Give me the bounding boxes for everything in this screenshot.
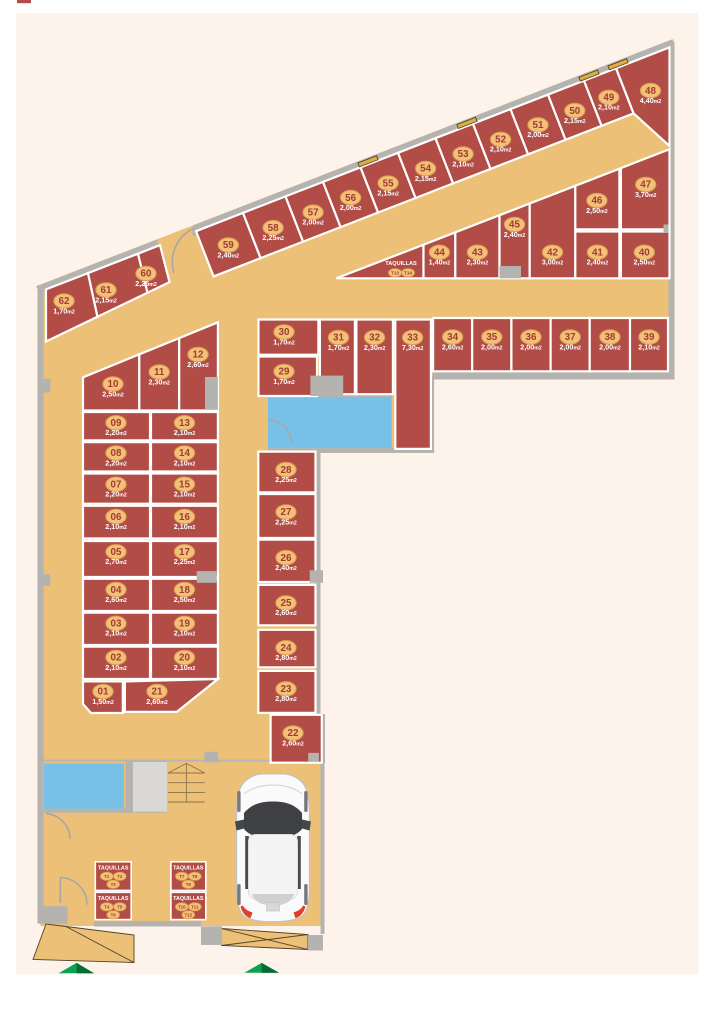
svg-text:TAQUILLAS: TAQUILLAS bbox=[98, 865, 129, 871]
svg-text:TAQUILLAS: TAQUILLAS bbox=[173, 865, 204, 871]
svg-text:T13: T13 bbox=[391, 271, 399, 276]
svg-text:T6: T6 bbox=[111, 913, 117, 918]
svg-text:T12: T12 bbox=[185, 913, 193, 918]
svg-text:T9: T9 bbox=[186, 882, 192, 887]
svg-text:T5: T5 bbox=[117, 905, 123, 910]
svg-text:T14: T14 bbox=[404, 271, 412, 276]
svg-text:T2: T2 bbox=[117, 874, 123, 879]
svg-text:T8: T8 bbox=[192, 874, 198, 879]
svg-text:TAQUILLAS: TAQUILLAS bbox=[173, 896, 204, 902]
svg-text:TAQUILLAS: TAQUILLAS bbox=[385, 261, 417, 267]
svg-text:T4: T4 bbox=[104, 905, 110, 910]
svg-text:T1: T1 bbox=[104, 874, 110, 879]
svg-text:T7: T7 bbox=[179, 874, 185, 879]
svg-text:TAQUILLAS: TAQUILLAS bbox=[98, 896, 129, 902]
svg-text:T10: T10 bbox=[178, 905, 186, 910]
svg-text:T3: T3 bbox=[111, 882, 117, 887]
svg-text:T11: T11 bbox=[191, 905, 199, 910]
